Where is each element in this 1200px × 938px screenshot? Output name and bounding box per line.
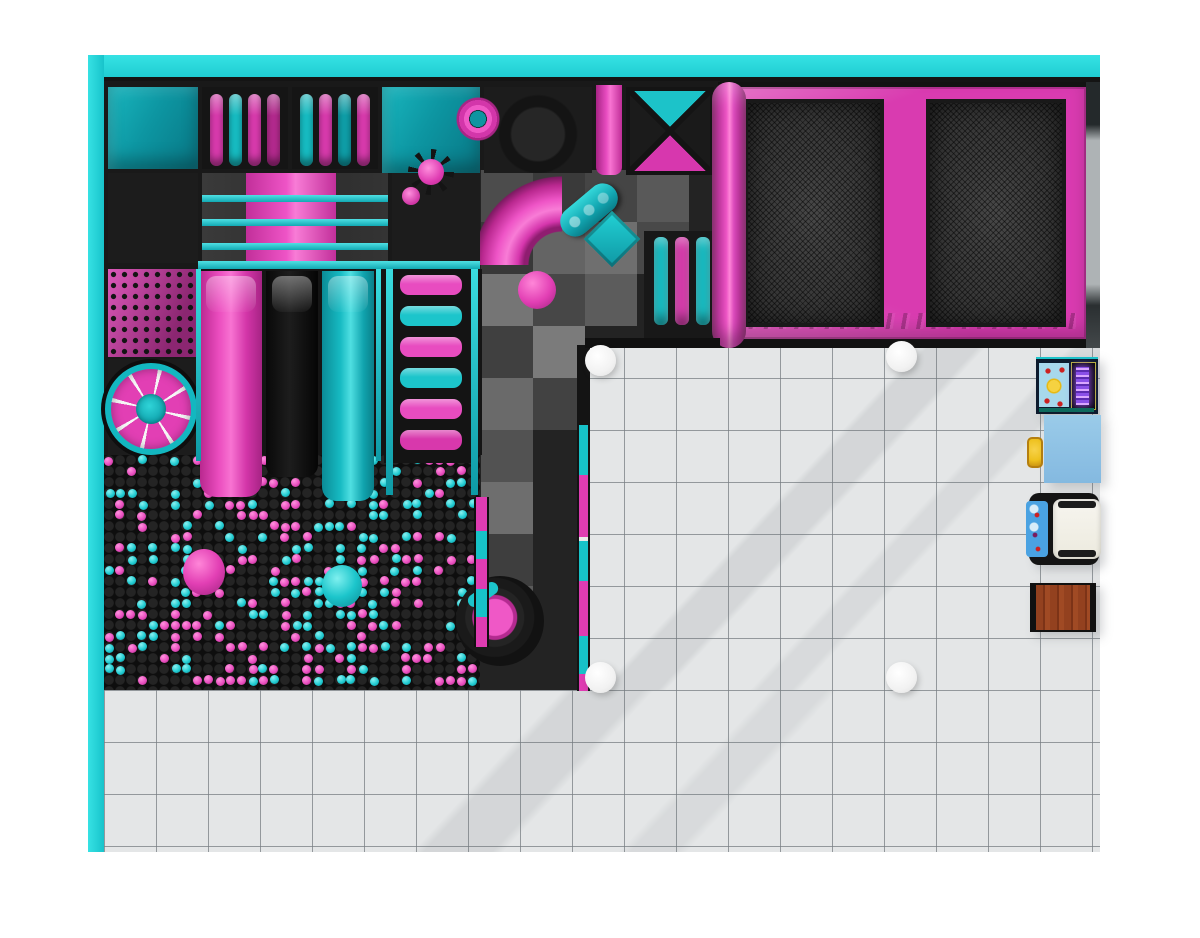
pit-ball — [170, 457, 179, 466]
pit-ball — [193, 632, 202, 641]
pit-ball — [128, 556, 137, 565]
pit-ball — [105, 664, 114, 673]
pit-ball — [171, 543, 180, 552]
pit-ball — [182, 599, 191, 608]
seat-bar-top — [1058, 501, 1096, 508]
slide-lane-pink — [200, 271, 262, 497]
pit-ball — [259, 610, 268, 619]
pit-ball — [336, 610, 345, 619]
pit-ball — [468, 677, 477, 686]
pit-ball — [347, 522, 356, 531]
pit-ball — [259, 676, 268, 685]
pit-ball — [115, 610, 124, 619]
padding-segment — [476, 589, 487, 617]
pit-ball — [226, 676, 235, 685]
support-column — [585, 662, 616, 693]
pit-ball — [291, 633, 300, 642]
spiral-slide-bowl — [456, 576, 544, 666]
pit-ball — [269, 577, 278, 586]
checker-patch — [481, 326, 533, 378]
crawl-bars-cell-1 — [202, 87, 288, 169]
pink-hemisphere — [183, 549, 225, 595]
pit-ball — [226, 643, 235, 652]
roller-rung — [400, 368, 462, 388]
pit-ball — [237, 598, 246, 607]
pit-ball — [392, 467, 401, 476]
pit-ball — [249, 665, 258, 674]
pit-ball — [149, 555, 158, 564]
padding-segment — [579, 475, 588, 537]
pit-ball — [116, 666, 125, 675]
pit-ball — [413, 566, 422, 575]
pit-ball — [116, 489, 125, 498]
pit-ball — [106, 489, 115, 498]
pit-ball — [149, 621, 158, 630]
slide-cyan-stripe — [202, 243, 388, 250]
crawl-bar — [338, 94, 351, 166]
pit-ball — [192, 621, 201, 630]
pit-ball — [380, 576, 389, 585]
pit-ball — [457, 665, 466, 674]
tiled-floor-bottom — [104, 690, 1100, 852]
pit-ball — [149, 632, 158, 641]
pit-ball — [446, 499, 455, 508]
pit-ball — [369, 511, 378, 520]
pit-ball — [369, 644, 378, 653]
pit-ball — [436, 643, 445, 652]
pit-ball — [237, 676, 246, 685]
pit-ball — [258, 533, 267, 542]
pit-ball — [347, 642, 356, 651]
pit-ball — [413, 479, 422, 488]
pit-ball — [115, 543, 124, 552]
support-column — [886, 341, 917, 372]
pit-ball — [304, 543, 313, 552]
pit-ball — [182, 655, 191, 664]
pit-ball — [314, 599, 323, 608]
pit-ball — [435, 489, 444, 498]
checker-patch — [637, 170, 689, 222]
pit-ball — [302, 665, 311, 674]
stripe-slide-cell — [202, 173, 388, 267]
pit-ball — [181, 588, 190, 597]
pit-ball — [402, 532, 411, 541]
pit-ball — [281, 488, 290, 497]
pit-ball — [171, 534, 180, 543]
pit-ball — [291, 500, 300, 509]
padding-segment — [476, 617, 487, 647]
pit-ball — [205, 501, 214, 510]
wooden-table-top — [1036, 585, 1090, 630]
pit-ball — [216, 677, 225, 686]
pit-ball — [183, 532, 192, 541]
pit-ball — [225, 664, 234, 673]
pit-ball — [335, 654, 344, 663]
pit-ball — [172, 664, 181, 673]
spinner-wheel — [105, 363, 197, 455]
pit-ball — [347, 611, 356, 620]
pit-ball — [127, 467, 136, 476]
pit-ball — [248, 655, 257, 664]
spiral-slide-top-tube — [472, 175, 562, 265]
arcade-screen-glow — [1076, 367, 1089, 405]
pit-ball — [193, 676, 202, 685]
pit-ball — [303, 532, 312, 541]
pit-ball — [303, 622, 312, 631]
padding-segment — [476, 559, 487, 589]
pit-ball — [259, 642, 268, 651]
pit-ball — [446, 676, 455, 685]
pit-ball — [104, 457, 113, 466]
pit-ball — [105, 633, 114, 642]
pit-ball — [193, 510, 202, 519]
slide-cyan-stripe — [202, 219, 388, 226]
pit-ball — [303, 611, 312, 620]
pit-ball — [468, 664, 477, 673]
pit-ball — [403, 500, 412, 509]
support-column — [886, 662, 917, 693]
pit-ball — [292, 554, 301, 563]
pit-ball — [412, 499, 421, 508]
pit-ball — [281, 501, 290, 510]
pit-ball — [369, 501, 378, 510]
pit-ball — [326, 644, 335, 653]
padding-segment — [579, 541, 588, 581]
pit-ball — [160, 654, 169, 663]
padding-segment — [476, 497, 487, 531]
ball-pit — [104, 455, 480, 690]
checker-patch — [481, 378, 533, 430]
pit-ball — [215, 633, 224, 642]
ride-seat — [1053, 499, 1101, 559]
pit-ball — [249, 511, 258, 520]
pit-ball — [226, 565, 235, 574]
donut-roller-toy — [456, 97, 500, 141]
pit-ball — [138, 455, 147, 464]
pit-ball — [337, 675, 346, 684]
punch-bag-pink — [675, 237, 689, 325]
pit-ball — [379, 500, 388, 509]
black-cell-tube-top — [484, 87, 592, 173]
pit-ball — [315, 631, 324, 640]
pit-ball — [402, 643, 411, 652]
roller-rung — [400, 337, 462, 357]
roller-rung — [400, 306, 462, 326]
pit-ball — [238, 545, 247, 554]
pit-ball — [138, 611, 147, 620]
pit-ball — [412, 577, 421, 586]
roller-ladder — [384, 269, 478, 463]
roller-rung — [400, 430, 462, 450]
pit-ball — [347, 665, 356, 674]
pit-ball — [248, 599, 257, 608]
pit-ball — [302, 676, 311, 685]
crawl-bar — [300, 94, 313, 166]
pit-ball — [434, 566, 443, 575]
pit-ball — [304, 577, 313, 586]
pit-ball — [369, 610, 378, 619]
pink-slide-lane-top — [596, 85, 622, 175]
pit-ball — [148, 543, 157, 552]
pit-ball — [392, 588, 401, 597]
crawl-bar — [267, 94, 280, 166]
pit-ball — [126, 610, 135, 619]
pit-ball — [358, 609, 367, 618]
pit-ball — [171, 599, 180, 608]
pit-ball — [368, 622, 377, 631]
slide-cyan-stripe — [202, 195, 388, 202]
ride-control-panel — [1026, 501, 1048, 557]
roller-rung — [400, 399, 462, 419]
punch-bag-cyan — [654, 237, 668, 325]
cyan-wall-left — [88, 55, 104, 852]
pit-ball — [137, 600, 146, 609]
pit-ball — [171, 490, 180, 499]
pit-ball — [457, 466, 466, 475]
crawl-bar — [319, 94, 332, 166]
arcade-screen — [1071, 362, 1096, 410]
punch-bag-cyan — [696, 237, 710, 325]
pit-ball — [414, 554, 423, 563]
pit-ball — [280, 533, 289, 542]
pit-ball — [391, 544, 400, 553]
pit-ball — [215, 521, 224, 530]
pit-ball — [137, 631, 146, 640]
pit-ball — [402, 555, 411, 564]
pit-ball — [258, 664, 267, 673]
pit-ball — [182, 664, 191, 673]
pit-ball — [138, 523, 147, 532]
pit-ball — [204, 675, 213, 684]
corridor-wall-strip — [577, 345, 590, 691]
pit-ball — [447, 556, 456, 565]
pit-ball — [238, 556, 247, 565]
pit-ball — [293, 621, 302, 630]
pit-ball — [270, 521, 279, 530]
playground-floor-plan — [0, 0, 1200, 938]
pit-ball — [457, 677, 466, 686]
pit-ball — [302, 587, 311, 596]
pit-ball — [315, 665, 324, 674]
pit-ball — [226, 621, 235, 630]
pit-ball — [248, 555, 257, 564]
pit-ball — [282, 556, 291, 565]
pit-ball — [402, 676, 411, 685]
pit-ball — [401, 653, 410, 662]
pit-ball — [392, 621, 401, 630]
pit-ball — [358, 643, 367, 652]
pit-ball — [325, 522, 334, 531]
pit-ball — [171, 633, 180, 642]
ladder-rail — [386, 269, 393, 495]
pit-ball — [314, 677, 323, 686]
pit-ball — [225, 501, 234, 510]
pit-ball — [237, 511, 246, 520]
right-wall-strip — [1086, 82, 1100, 348]
pit-ball — [105, 644, 114, 653]
perforated-climb-panel — [108, 269, 196, 357]
arcade-base-strip — [1039, 408, 1094, 412]
pit-ball — [128, 489, 137, 498]
pit-ball — [336, 544, 345, 553]
pit-ball — [315, 644, 324, 653]
pit-ball — [115, 500, 124, 509]
x-cross-cell — [626, 87, 714, 175]
arcade-machine — [1036, 357, 1098, 414]
pink-tube-slide — [712, 82, 746, 348]
ladder-rail — [471, 269, 478, 495]
pit-ball — [358, 567, 367, 576]
pit-ball — [203, 611, 212, 620]
pit-ball — [381, 642, 390, 651]
slide-lane-cyan — [322, 271, 374, 501]
pit-ball — [128, 644, 137, 653]
padding-segment — [579, 581, 588, 636]
wooden-table — [1030, 583, 1096, 632]
pit-ball — [391, 598, 400, 607]
pit-ball — [413, 532, 422, 541]
crawl-bar — [248, 94, 261, 166]
pit-ball — [271, 567, 280, 576]
ball-pit-edge — [474, 497, 489, 647]
arcade-control-panel — [1039, 363, 1069, 407]
pit-ball — [425, 489, 434, 498]
pit-ball — [357, 556, 366, 565]
pit-ball — [105, 566, 114, 575]
pit-ball — [392, 554, 401, 563]
black-play-cell — [108, 173, 198, 263]
pit-ball — [436, 467, 445, 476]
pit-ball — [347, 621, 356, 630]
pit-ball — [379, 544, 388, 553]
crawl-bars-cell-2 — [292, 87, 378, 169]
roller-rung — [400, 275, 462, 295]
pit-ball — [215, 621, 224, 630]
kids-table-blue — [1044, 415, 1101, 483]
spinner-knob — [402, 187, 420, 205]
pit-ball — [414, 599, 423, 608]
ride-machine — [1029, 493, 1099, 565]
pit-ball — [291, 478, 300, 487]
pit-ball — [402, 665, 411, 674]
pit-ball — [380, 588, 389, 597]
pit-ball — [390, 567, 399, 576]
crawl-bar — [229, 94, 242, 166]
pit-ball — [457, 478, 466, 487]
pit-ball — [116, 631, 125, 640]
pit-ball — [225, 533, 234, 542]
pit-ball — [282, 611, 291, 620]
pit-ball — [347, 654, 356, 663]
pit-ball — [370, 555, 379, 564]
pit-ball — [447, 534, 456, 543]
slide-platform-edge — [198, 261, 480, 269]
pit-ball — [401, 578, 410, 587]
pit-ball — [148, 577, 157, 586]
pit-ball — [171, 610, 180, 619]
teal-play-cell — [108, 87, 198, 169]
pit-ball — [424, 643, 433, 652]
pit-ball — [335, 522, 344, 531]
pit-ball — [116, 653, 125, 662]
padding-segment — [579, 425, 588, 475]
checker-patch — [585, 274, 637, 326]
trampoline-bed-1 — [744, 99, 884, 327]
tiled-floor-right — [585, 348, 1100, 690]
pit-ball — [249, 677, 258, 686]
pit-ball — [238, 642, 247, 651]
seat-bar-bottom — [1058, 550, 1096, 557]
padding-segment — [476, 531, 487, 559]
pit-ball — [269, 665, 278, 674]
pit-ball — [171, 578, 180, 587]
pit-ball — [457, 653, 466, 662]
trampoline-court — [718, 82, 1100, 348]
slide-rail — [196, 269, 201, 461]
pit-ball — [248, 500, 257, 509]
pit-ball — [292, 545, 301, 554]
pit-ball — [115, 566, 124, 575]
pit-ball — [379, 511, 388, 520]
pit-ball — [359, 533, 368, 542]
pit-ball — [280, 643, 289, 652]
pit-ball — [302, 642, 311, 651]
pit-ball — [281, 622, 290, 631]
pit-ball — [446, 622, 455, 631]
pit-ball — [269, 479, 278, 488]
pit-ball — [271, 588, 280, 597]
pit-ball — [115, 510, 124, 519]
punch-bag-block — [644, 231, 720, 346]
pit-ball — [236, 501, 245, 510]
pit-ball — [127, 543, 136, 552]
pit-ball — [346, 675, 355, 684]
pit-ball — [183, 521, 192, 530]
pit-ball — [370, 677, 379, 686]
pit-ball — [435, 532, 444, 541]
crawl-bar — [357, 94, 370, 166]
pit-ball — [446, 479, 455, 488]
pit-ball — [281, 598, 290, 607]
pit-ball — [435, 677, 444, 686]
soft-play-ball — [518, 271, 556, 309]
pit-ball — [357, 632, 366, 641]
cyan-hemisphere — [322, 565, 362, 607]
pit-ball — [138, 642, 147, 651]
pit-ball — [314, 523, 323, 532]
pit-ball — [281, 523, 290, 532]
pit-ball — [171, 621, 180, 630]
pit-ball — [280, 578, 289, 587]
pit-ball — [259, 511, 268, 520]
pit-ball — [458, 510, 467, 519]
pit-ball — [270, 675, 279, 684]
pit-ball — [412, 654, 421, 663]
pit-ball — [182, 621, 191, 630]
pit-ball — [336, 555, 345, 564]
checker-patch — [481, 430, 533, 482]
pit-ball — [139, 501, 148, 510]
pit-ball — [171, 643, 180, 652]
pit-ball — [291, 589, 300, 598]
pit-ball — [138, 676, 147, 685]
pit-ball — [368, 600, 377, 609]
trampoline-bed-2 — [926, 99, 1066, 327]
pit-ball — [369, 534, 378, 543]
kids-chair — [1027, 437, 1043, 468]
slide-rail — [376, 269, 381, 461]
crawl-bar — [210, 94, 223, 166]
